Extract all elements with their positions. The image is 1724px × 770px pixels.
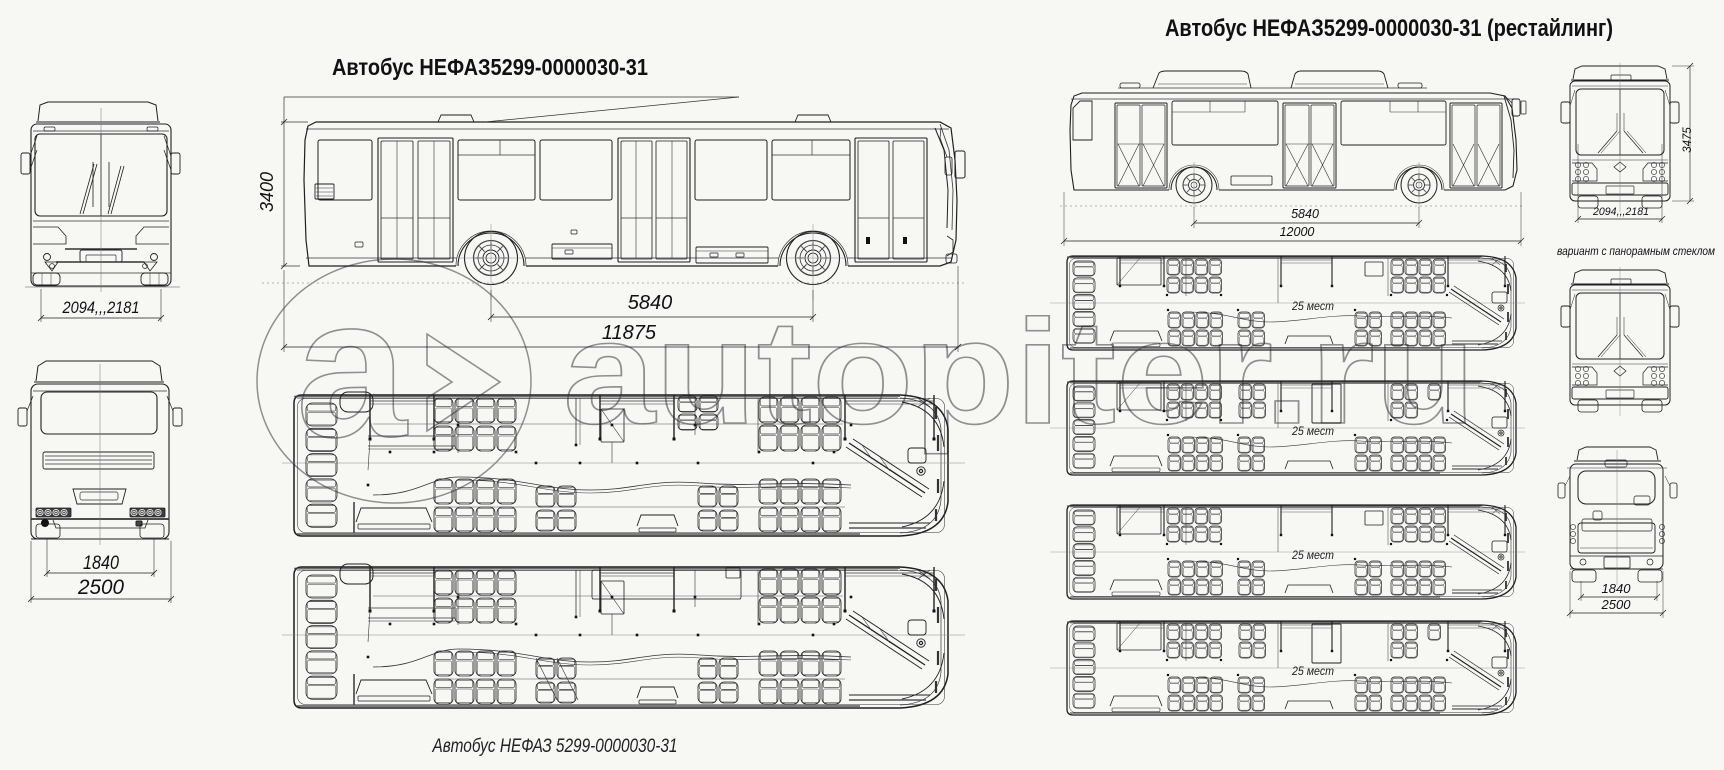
svg-text:12000: 12000 <box>1280 225 1315 239</box>
svg-text:2094,,,2181: 2094,,,2181 <box>1592 206 1649 218</box>
svg-text:Автобус НЕФАЗ5299-0000030-31: Автобус НЕФАЗ5299-0000030-31 <box>332 54 648 80</box>
svg-text:autopiter.ru: autopiter.ru <box>563 290 1476 455</box>
svg-text:2500: 2500 <box>1601 597 1632 612</box>
svg-text:3400: 3400 <box>257 172 277 212</box>
svg-text:1840: 1840 <box>1602 581 1632 596</box>
svg-text:Автобус НЕФАЗ5299-0000030-31 (: Автобус НЕФАЗ5299-0000030-31 (рестайлинг… <box>1165 15 1613 42</box>
svg-text:25 мест: 25 мест <box>1291 550 1334 562</box>
svg-text:5840: 5840 <box>628 292 673 314</box>
svg-text:3475: 3475 <box>1682 127 1694 153</box>
svg-text:25 мест: 25 мест <box>1291 301 1334 313</box>
svg-text:2500: 2500 <box>77 576 124 599</box>
svg-text:1840: 1840 <box>83 553 119 574</box>
svg-text:25 мест: 25 мест <box>1291 666 1334 678</box>
svg-text:5840: 5840 <box>1291 207 1319 221</box>
svg-text:11875: 11875 <box>602 322 657 344</box>
svg-text:25 мест: 25 мест <box>1291 426 1334 438</box>
svg-text:2094,,,2181: 2094,,,2181 <box>62 298 140 317</box>
svg-text:вариант с панорамным стеклом: вариант с панорамным стеклом <box>1557 246 1715 258</box>
svg-text:Автобус НЕФАЗ 5299-0000030-31: Автобус НЕФАЗ 5299-0000030-31 <box>432 736 678 757</box>
